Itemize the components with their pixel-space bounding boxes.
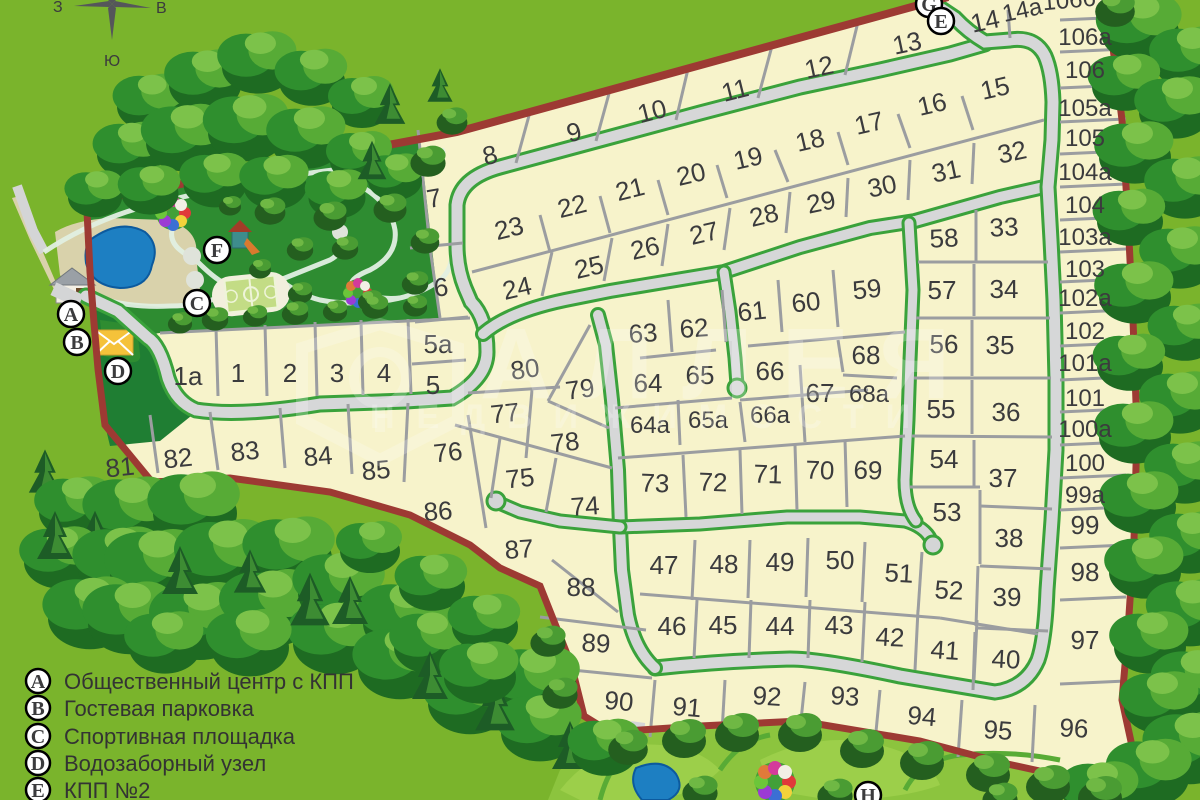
- svg-text:41: 41: [930, 634, 961, 666]
- svg-text:B: B: [31, 698, 44, 720]
- svg-text:86: 86: [423, 495, 454, 527]
- svg-text:87: 87: [504, 533, 535, 565]
- svg-text:99: 99: [1071, 510, 1100, 540]
- svg-text:З: З: [53, 0, 63, 16]
- svg-text:38: 38: [995, 523, 1024, 553]
- svg-text:31: 31: [929, 153, 964, 188]
- svg-text:100a: 100a: [1058, 416, 1112, 443]
- svg-text:13: 13: [890, 25, 925, 60]
- svg-text:35: 35: [986, 330, 1015, 360]
- svg-text:В: В: [156, 0, 167, 17]
- svg-text:50: 50: [826, 545, 855, 575]
- svg-text:96: 96: [1059, 712, 1089, 743]
- svg-text:58: 58: [929, 222, 959, 253]
- svg-text:95: 95: [983, 714, 1014, 746]
- svg-text:29: 29: [804, 184, 839, 219]
- svg-text:Ю: Ю: [104, 53, 120, 70]
- svg-text:КПП №2: КПП №2: [64, 778, 150, 800]
- svg-text:72: 72: [698, 467, 728, 498]
- svg-text:Общественный центр с КПП: Общественный центр с КПП: [64, 669, 354, 694]
- svg-text:73: 73: [640, 468, 670, 499]
- svg-text:71: 71: [753, 459, 783, 490]
- svg-text:104a: 104a: [1058, 159, 1112, 186]
- svg-text:33: 33: [989, 211, 1019, 242]
- svg-text:93: 93: [830, 680, 861, 712]
- svg-text:103: 103: [1065, 256, 1105, 283]
- svg-text:1a: 1a: [174, 361, 203, 391]
- svg-text:51: 51: [884, 557, 914, 588]
- svg-text:42: 42: [875, 621, 905, 652]
- svg-text:49: 49: [766, 547, 795, 577]
- svg-text:D: D: [31, 753, 45, 775]
- svg-text:43: 43: [825, 610, 854, 640]
- svg-text:70: 70: [805, 455, 835, 486]
- svg-text:97: 97: [1071, 625, 1100, 655]
- svg-text:102: 102: [1065, 318, 1105, 345]
- svg-text:32: 32: [995, 134, 1030, 169]
- svg-text:44: 44: [766, 611, 795, 641]
- svg-text:90: 90: [603, 685, 634, 717]
- svg-text:82: 82: [162, 442, 194, 475]
- svg-text:4: 4: [377, 358, 391, 388]
- svg-text:52: 52: [934, 574, 964, 605]
- svg-text:105a: 105a: [1058, 95, 1112, 122]
- svg-text:C: C: [190, 293, 204, 315]
- svg-text:69: 69: [853, 455, 883, 486]
- svg-text:5: 5: [426, 370, 440, 400]
- svg-text:47: 47: [650, 550, 679, 580]
- svg-text:Спортивная площадка: Спортивная площадка: [64, 724, 296, 749]
- svg-text:106: 106: [1065, 57, 1105, 84]
- svg-text:30: 30: [865, 168, 900, 203]
- svg-text:D: D: [111, 361, 125, 383]
- svg-text:74: 74: [570, 490, 601, 522]
- svg-text:12: 12: [802, 49, 837, 84]
- svg-text:81: 81: [104, 451, 136, 484]
- svg-text:83: 83: [229, 435, 261, 468]
- svg-text:91: 91: [671, 691, 702, 723]
- svg-text:A: A: [31, 671, 46, 693]
- svg-text:59: 59: [851, 273, 883, 306]
- svg-text:45: 45: [709, 610, 738, 640]
- svg-text:101: 101: [1065, 385, 1105, 412]
- svg-text:H: H: [860, 785, 876, 800]
- svg-text:E: E: [31, 780, 44, 800]
- svg-text:102a: 102a: [1058, 285, 1112, 312]
- svg-text:48: 48: [710, 549, 739, 579]
- svg-text:F: F: [211, 240, 223, 262]
- svg-text:57: 57: [928, 275, 957, 305]
- svg-text:88: 88: [567, 572, 596, 602]
- svg-text:36: 36: [992, 397, 1021, 427]
- svg-text:14: 14: [968, 3, 1003, 38]
- svg-text:B: B: [70, 332, 83, 354]
- svg-text:2: 2: [283, 358, 297, 388]
- svg-text:104: 104: [1065, 192, 1105, 219]
- svg-text:75: 75: [504, 462, 536, 495]
- svg-text:6: 6: [432, 271, 449, 302]
- svg-text:1: 1: [231, 358, 245, 388]
- svg-text:84: 84: [302, 440, 333, 472]
- svg-text:3: 3: [330, 358, 344, 388]
- svg-text:101a: 101a: [1058, 350, 1112, 377]
- svg-text:106a: 106a: [1058, 24, 1112, 51]
- svg-text:68: 68: [852, 340, 881, 370]
- svg-text:A: A: [64, 304, 79, 326]
- svg-text:76: 76: [432, 436, 464, 469]
- svg-text:46: 46: [658, 611, 687, 641]
- svg-text:Водозаборный узел: Водозаборный узел: [64, 751, 266, 776]
- svg-text:C: C: [31, 726, 45, 748]
- svg-text:37: 37: [989, 463, 1018, 493]
- svg-text:94: 94: [906, 700, 937, 732]
- svg-text:103a: 103a: [1058, 224, 1112, 251]
- svg-text:E: E: [934, 11, 947, 33]
- svg-text:100: 100: [1065, 450, 1105, 477]
- svg-text:40: 40: [991, 643, 1021, 674]
- svg-text:54: 54: [930, 444, 959, 474]
- svg-text:Гостевая парковка: Гостевая парковка: [64, 696, 255, 721]
- svg-text:89: 89: [581, 627, 611, 658]
- svg-text:53: 53: [933, 497, 962, 527]
- svg-text:99a: 99a: [1065, 482, 1106, 509]
- svg-text:92: 92: [752, 680, 783, 712]
- svg-text:105: 105: [1065, 125, 1105, 152]
- svg-text:98: 98: [1071, 557, 1100, 587]
- svg-text:66: 66: [756, 356, 785, 386]
- svg-text:39: 39: [993, 582, 1022, 612]
- svg-text:34: 34: [990, 274, 1019, 304]
